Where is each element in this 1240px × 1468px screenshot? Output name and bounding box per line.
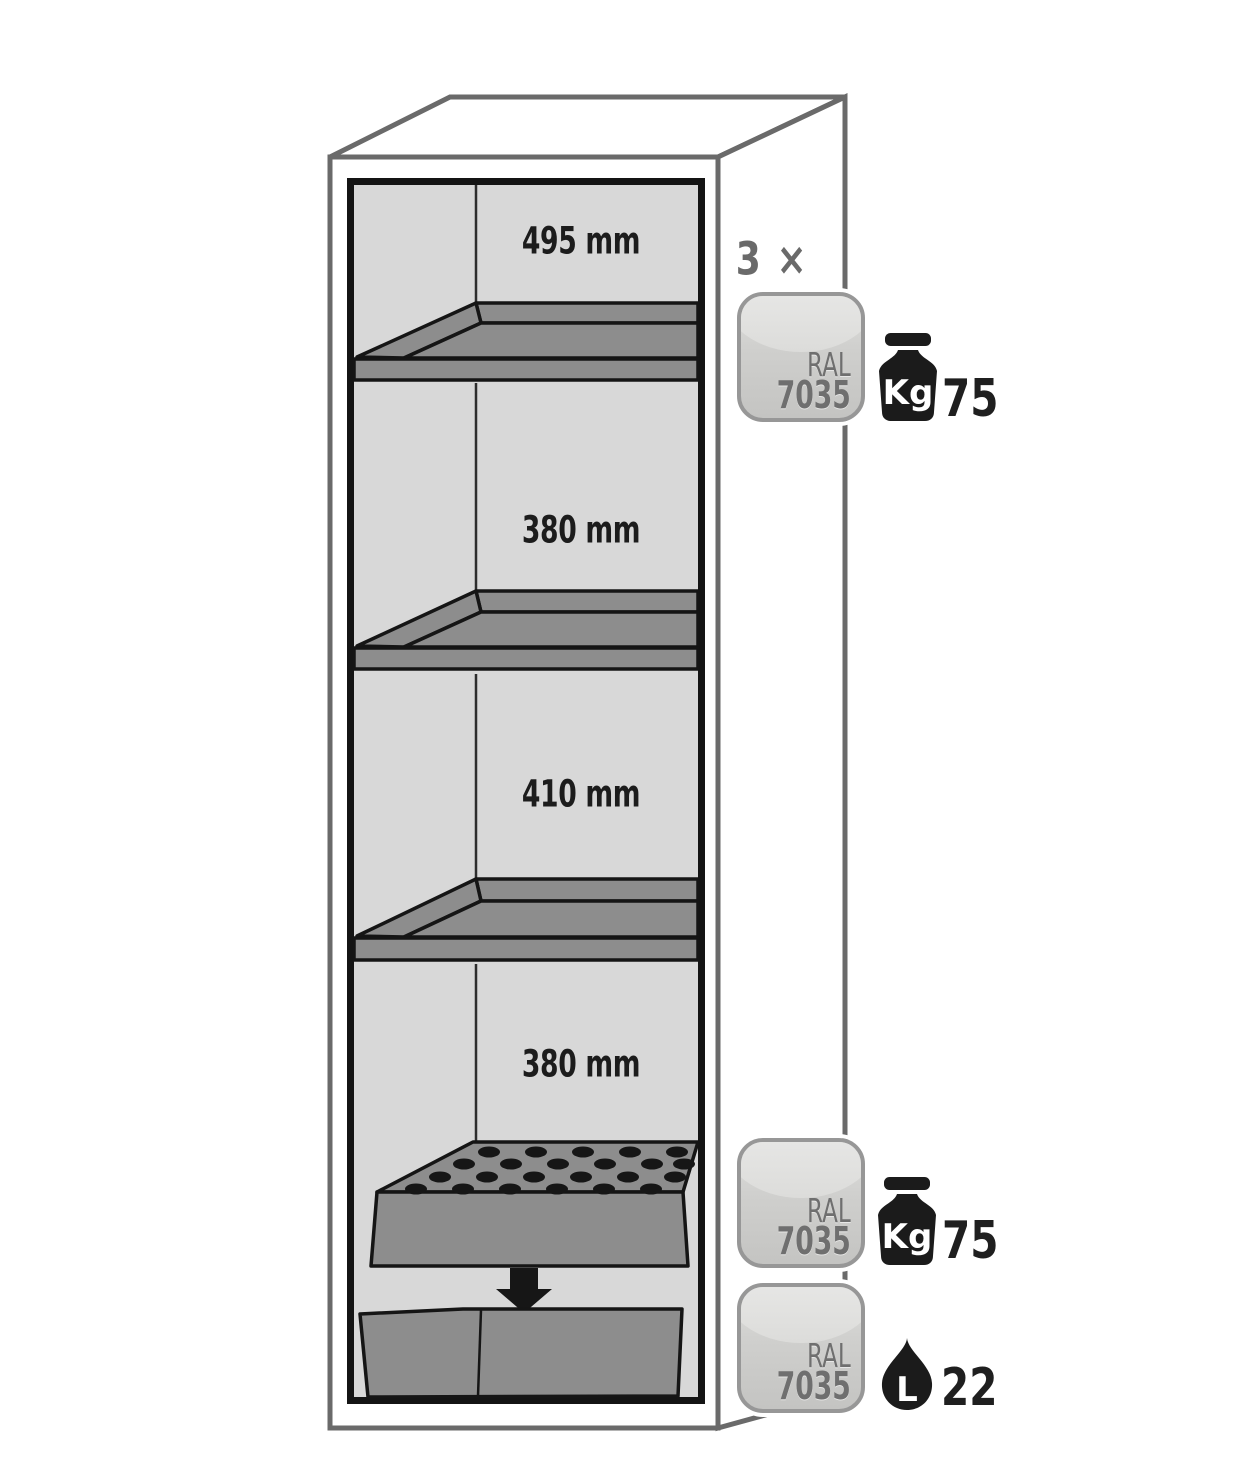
ral-badge-insert: RAL 7035 [737,1138,865,1268]
kg-unit-label: Kg [882,1217,933,1257]
insert-load-value: 75 [942,1215,998,1267]
liquid-drop-icon: L [880,1337,934,1411]
shelf-count-label: 3 × [736,233,809,286]
liters-unit-label: L [896,1370,918,1410]
ral-badge-sump: RAL 7035 [737,1283,865,1413]
compartment-4-height-label: 380 mm [522,1043,640,1086]
ral-badge-shelf: RAL 7035 [737,292,865,422]
badge-gloss [737,1138,865,1198]
badge-gloss [737,292,865,352]
ral-code-label: 7035 [777,1225,851,1258]
ral-code-label: 7035 [777,1370,851,1403]
weight-kg-icon: Kg [878,333,938,421]
compartment-1-height-label: 495 mm [522,220,640,263]
spill-sump [360,1309,682,1397]
weight-kg-icon: Kg [877,1177,937,1265]
sump-volume-value: 22 [941,1362,997,1414]
cabinet-diagram: 495 mm 380 mm 410 mm 380 mm 3 × RAL 7035… [0,0,1240,1468]
badge-gloss [737,1283,865,1343]
compartment-3-height-label: 410 mm [522,773,640,816]
ral-code-label: 7035 [777,379,851,412]
shelf-load-value: 75 [942,373,998,425]
kg-unit-label: Kg [883,373,934,413]
compartment-2-height-label: 380 mm [522,509,640,552]
